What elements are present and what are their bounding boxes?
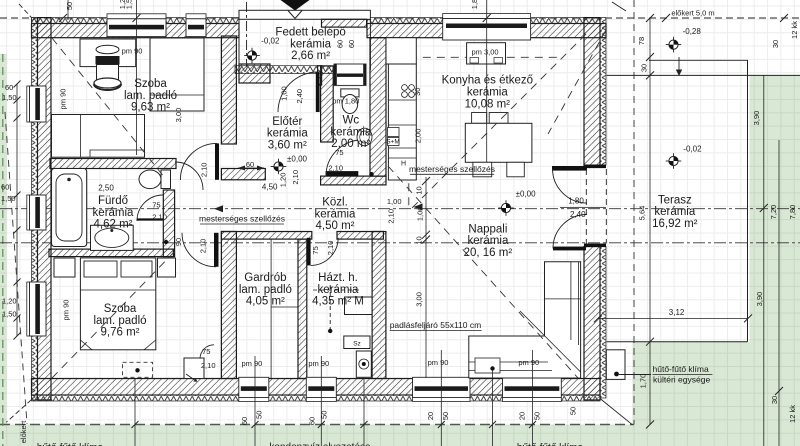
svg-text:5,64: 5,64 bbox=[638, 206, 647, 221]
svg-text:S+M: S+M bbox=[386, 139, 400, 146]
svg-text:60: 60 bbox=[5, 83, 13, 92]
svg-text:1,20: 1,20 bbox=[2, 297, 17, 306]
svg-text:2,10: 2,10 bbox=[199, 162, 208, 177]
svg-text:75: 75 bbox=[152, 200, 160, 209]
svg-text:Wc: Wc bbox=[342, 115, 359, 127]
svg-text:3,90: 3,90 bbox=[755, 292, 764, 307]
svg-text:4,50: 4,50 bbox=[262, 182, 278, 191]
svg-text:pm 90: pm 90 bbox=[428, 358, 449, 367]
svg-text:1,00: 1,00 bbox=[280, 86, 289, 101]
svg-text:Sz: Sz bbox=[353, 341, 361, 348]
svg-text:20: 20 bbox=[517, 412, 526, 420]
svg-text:50: 50 bbox=[441, 412, 450, 420]
svg-text:2,00: 2,00 bbox=[414, 129, 423, 144]
svg-text:50: 50 bbox=[532, 412, 541, 420]
svg-text:1,5: 1,5 bbox=[125, 0, 134, 9]
svg-text:Szoba: Szoba bbox=[134, 78, 167, 90]
svg-text:7,20: 7,20 bbox=[769, 205, 778, 220]
svg-text:2,50: 2,50 bbox=[98, 184, 114, 193]
svg-text:60: 60 bbox=[240, 417, 249, 425]
svg-text:4,35 m² M: 4,35 m² M bbox=[312, 296, 364, 308]
svg-text:Konyha és étkező: Konyha és étkező bbox=[442, 75, 533, 87]
svg-text:lam. padló: lam. padló bbox=[239, 284, 292, 296]
svg-text:60: 60 bbox=[347, 40, 356, 48]
svg-text:60: 60 bbox=[1, 183, 9, 192]
svg-text:Nappali: Nappali bbox=[468, 223, 507, 235]
svg-text:10: 10 bbox=[414, 236, 423, 244]
svg-text:-0,02: -0,02 bbox=[261, 37, 280, 46]
svg-text:2,10: 2,10 bbox=[326, 241, 335, 256]
svg-text:kerámia: kerámia bbox=[467, 235, 509, 247]
svg-text:75: 75 bbox=[335, 148, 343, 157]
svg-text:30: 30 bbox=[413, 88, 422, 96]
svg-text:4,05 m²: 4,05 m² bbox=[246, 296, 285, 308]
svg-text:12 kk: 12 kk bbox=[788, 405, 797, 423]
svg-text:1,50: 1,50 bbox=[2, 93, 17, 102]
svg-text:padlásfeljáró 55x110 cm: padlásfeljáró 55x110 cm bbox=[390, 320, 482, 330]
svg-text:pm 90: pm 90 bbox=[59, 89, 68, 110]
svg-text:60: 60 bbox=[307, 417, 316, 425]
svg-text:2,40: 2,40 bbox=[570, 210, 586, 219]
svg-text:1,00: 1,00 bbox=[387, 197, 402, 206]
svg-text:2,10: 2,10 bbox=[199, 239, 208, 254]
svg-text:Szoba: Szoba bbox=[104, 303, 137, 315]
svg-text:50: 50 bbox=[65, 2, 74, 10]
svg-text:Terasz: Terasz bbox=[658, 194, 692, 206]
svg-text:50: 50 bbox=[319, 411, 328, 419]
svg-text:1,50: 1,50 bbox=[1, 194, 16, 203]
svg-text:9,63 m²: 9,63 m² bbox=[131, 102, 170, 114]
svg-text:12 kk: 12 kk bbox=[790, 21, 799, 39]
svg-text:pm 90: pm 90 bbox=[122, 47, 143, 56]
svg-text:3,60 m²: 3,60 m² bbox=[268, 139, 307, 151]
svg-text:4,50 m²: 4,50 m² bbox=[316, 220, 355, 232]
svg-text:pm 3,00: pm 3,00 bbox=[471, 48, 498, 57]
svg-text:kerámia: kerámia bbox=[654, 206, 696, 218]
svg-text:50: 50 bbox=[254, 411, 263, 419]
svg-text:10: 10 bbox=[414, 186, 423, 194]
svg-text:90: 90 bbox=[174, 238, 183, 246]
svg-text:4,62 m²: 4,62 m² bbox=[94, 219, 133, 231]
svg-text:pm 90: pm 90 bbox=[518, 358, 539, 367]
svg-text:lam. padló: lam. padló bbox=[124, 90, 177, 102]
svg-text:mesterséges szellőzés: mesterséges szellőzés bbox=[199, 214, 285, 224]
svg-text:pm 1,80: pm 1,80 bbox=[332, 97, 359, 106]
svg-text:kerámia: kerámia bbox=[467, 87, 509, 99]
svg-text:60: 60 bbox=[246, 160, 254, 169]
svg-text:előkert 5,0 m: előkert 5,0 m bbox=[671, 9, 714, 18]
svg-text:3,12: 3,12 bbox=[669, 308, 685, 317]
svg-text:Gardrób: Gardrób bbox=[244, 272, 286, 284]
svg-text:78: 78 bbox=[637, 37, 646, 45]
svg-text:hűtő-fűtő klíma: hűtő-fűtő klíma bbox=[37, 443, 104, 446]
svg-text:kerámia: kerámia bbox=[93, 207, 135, 219]
svg-text:hűtő-fűtő klíma: hűtő-fűtő klíma bbox=[653, 364, 709, 374]
svg-text:kerámia: kerámia bbox=[267, 128, 309, 140]
svg-text:1,8: 1,8 bbox=[470, 0, 479, 9]
svg-text:Előtér: Előtér bbox=[272, 116, 302, 128]
svg-text:Fedett belépő: Fedett belépő bbox=[275, 27, 345, 39]
svg-text:-0,28: -0,28 bbox=[683, 27, 702, 36]
svg-text:Közl.: Közl. bbox=[322, 197, 348, 209]
svg-text:Fürdő: Fürdő bbox=[98, 195, 128, 207]
svg-text:20, 16 m²: 20, 16 m² bbox=[464, 247, 513, 259]
svg-text:16,92 m²: 16,92 m² bbox=[652, 218, 698, 230]
svg-text:pm 90: pm 90 bbox=[308, 359, 329, 368]
svg-text:1,70: 1,70 bbox=[639, 374, 648, 389]
svg-text:50: 50 bbox=[568, 407, 577, 415]
svg-text:30: 30 bbox=[640, 64, 649, 72]
svg-text:hűtő-fűtő klíma: hűtő-fűtő klíma bbox=[517, 443, 584, 446]
svg-text:2,10: 2,10 bbox=[152, 212, 167, 221]
svg-text:±0,00: ±0,00 bbox=[516, 190, 537, 199]
svg-text:1,20: 1,20 bbox=[278, 173, 287, 188]
svg-text:60: 60 bbox=[336, 40, 345, 48]
svg-text:lam. padló: lam. padló bbox=[93, 315, 146, 327]
svg-text:2,10: 2,10 bbox=[201, 361, 216, 370]
svg-text:30: 30 bbox=[770, 396, 779, 404]
svg-text:75: 75 bbox=[311, 246, 320, 254]
svg-text:30: 30 bbox=[771, 40, 780, 48]
svg-text:kerámia: kerámia bbox=[318, 284, 360, 296]
svg-text:pm 90: pm 90 bbox=[62, 300, 71, 321]
svg-text:7,80: 7,80 bbox=[788, 205, 797, 220]
svg-text:2,66 m²: 2,66 m² bbox=[291, 50, 330, 62]
svg-text:1,50: 1,50 bbox=[2, 310, 17, 319]
svg-text:1,80: 1,80 bbox=[568, 197, 584, 206]
svg-text:pm 90: pm 90 bbox=[241, 359, 262, 368]
svg-text:3,90: 3,90 bbox=[752, 111, 761, 126]
svg-text:20: 20 bbox=[426, 412, 435, 420]
svg-text:3,00: 3,00 bbox=[174, 108, 183, 123]
svg-text:9,76 m²: 9,76 m² bbox=[101, 327, 140, 339]
svg-text:2,10: 2,10 bbox=[291, 170, 300, 185]
svg-text:kerámia: kerámia bbox=[315, 208, 357, 220]
svg-text:kerámia: kerámia bbox=[290, 38, 332, 50]
svg-text:mesterséges szellőzés: mesterséges szellőzés bbox=[409, 164, 495, 174]
svg-text:-0,02: -0,02 bbox=[683, 145, 702, 154]
svg-text:75: 75 bbox=[202, 347, 210, 356]
svg-text:kondenzvíz elvezetése: kondenzvíz elvezetése bbox=[269, 442, 371, 446]
svg-text:kültéri egysége: kültéri egysége bbox=[653, 375, 710, 385]
svg-text:H: H bbox=[401, 161, 406, 168]
svg-text:3,00: 3,00 bbox=[414, 292, 423, 307]
svg-text:kerámia: kerámia bbox=[330, 126, 372, 138]
svg-text:2,40: 2,40 bbox=[295, 89, 304, 104]
svg-text:10,08 m²: 10,08 m² bbox=[465, 98, 511, 110]
svg-text:2,10: 2,10 bbox=[328, 163, 343, 172]
svg-text:előkert: előkert bbox=[19, 420, 28, 443]
svg-text:1,00: 1,00 bbox=[416, 206, 425, 221]
svg-text:±0,00: ±0,00 bbox=[287, 155, 308, 164]
svg-text:2,10: 2,10 bbox=[387, 209, 396, 224]
svg-text:Házt. h.: Házt. h. bbox=[318, 272, 358, 284]
